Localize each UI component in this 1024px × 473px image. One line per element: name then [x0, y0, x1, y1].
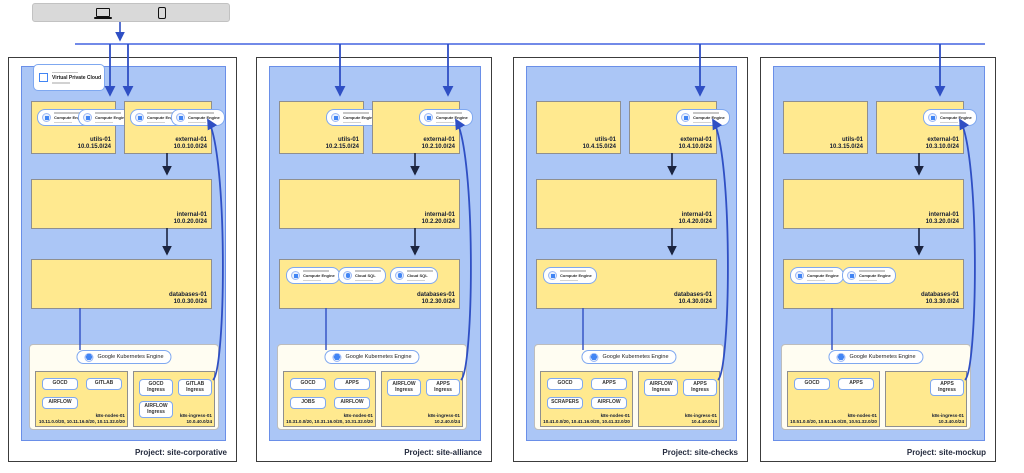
compute-engine-icon [42, 113, 51, 122]
gke-icon [836, 353, 845, 362]
subnet-label: databases-01 10.3.30.0/24 [921, 292, 959, 305]
subnet-label: internal-01 10.0.20.0/24 [174, 212, 207, 225]
workload-chip: GOCD [42, 378, 78, 390]
vpc-icon [39, 73, 48, 82]
compute-engine-icon [847, 271, 856, 280]
subnet-label: databases-01 10.0.30.0/24 [169, 292, 207, 305]
chip-microtext [52, 82, 70, 84]
workload-chip: GITLAB Ingress [178, 379, 212, 396]
workload-chip: APPS Ingress [426, 379, 460, 396]
workload-chip: GITLAB [86, 378, 122, 390]
workload-chip: AIRFLOW Ingress [139, 401, 173, 418]
subnet-label: k8s-ingress-01 10.4.40.0/24 [685, 413, 717, 424]
subnet-internal: internal-01 10.2.20.0/24 [279, 179, 460, 229]
subnet-label: k8s-nodes-01 10.41.0.0/20, 10.41.16.0/20… [543, 413, 630, 424]
compute-engine-chip: Compute Engine [676, 109, 730, 126]
subnet-external: Compute Engine external-01 10.4.10.0/24 [629, 101, 717, 154]
subnet-k8s-nodes: GOCD APPS SCRAPERS AIRFLOW k8s-nodes-01 … [540, 371, 633, 427]
workload-chip: GOCD [290, 378, 326, 390]
compute-engine-icon [176, 113, 185, 122]
gke-icon [589, 353, 598, 362]
subnet-databases: Compute Engine databases-01 10.4.30.0/24 [536, 259, 717, 309]
subnet-utils: Compute Engine utils-01 10.2.15.0/24 [279, 101, 364, 154]
project-panel-site-mockup: utils-01 10.3.15.0/24 Compute Engine ext… [760, 57, 996, 462]
subnet-label: external-01 10.0.10.0/24 [174, 137, 207, 150]
subnet-external: Compute Engine external-01 10.2.10.0/24 [372, 101, 460, 154]
vpc-chip: Virtual Private Cloud [33, 64, 105, 91]
workload-chip: AIRFLOW Ingress [387, 379, 421, 396]
cloud-sql-icon [395, 271, 404, 280]
gke-cluster: Google Kubernetes Engine GOCD GITLAB AIR… [29, 344, 219, 430]
workload-chip: JOBS [290, 397, 326, 409]
workload-chip: GOCD [794, 378, 830, 390]
gke-cluster: Google Kubernetes Engine GOCD APPS k8s-n… [781, 344, 971, 430]
laptop-icon [96, 8, 110, 17]
subnet-external: Compute Engine external-01 10.3.10.0/24 [876, 101, 964, 154]
gke-chip: Google Kubernetes Engine [581, 350, 676, 364]
compute-engine-icon [548, 271, 557, 280]
cloud-sql-chip: Cloud SQL [390, 267, 438, 284]
project-label: Project: site-alliance [404, 448, 482, 457]
subnet-label: external-01 10.3.10.0/24 [926, 137, 959, 150]
compute-engine-chip: Compute Engine [923, 109, 977, 126]
subnet-k8s-ingress: AIRFLOW Ingress APPS Ingress k8s-ingress… [638, 371, 720, 427]
gke-chip: Google Kubernetes Engine [828, 350, 923, 364]
subnet-k8s-nodes: GOCD GITLAB AIRFLOW k8s-nodes-01 10.11.0… [35, 371, 128, 427]
smartphone-icon [158, 7, 166, 19]
workload-chip: GOCD [547, 378, 583, 390]
subnet-internal: internal-01 10.4.20.0/24 [536, 179, 717, 229]
architecture-diagram: Virtual Private Cloud Compute Engine Com… [0, 0, 1024, 473]
project-panel-site-checks: utils-01 10.4.15.0/24 Compute Engine ext… [513, 57, 748, 462]
compute-engine-chip: Compute Engine [790, 267, 844, 284]
compute-engine-icon [795, 271, 804, 280]
gke-icon [332, 353, 341, 362]
project-label: Project: site-mockup [907, 448, 986, 457]
subnet-label: internal-01 10.4.20.0/24 [679, 212, 712, 225]
compute-engine-icon [424, 113, 433, 122]
subnet-databases: Compute Engine Compute Engine databases-… [783, 259, 964, 309]
subnet-label: k8s-ingress-01 10.0.40.0/24 [180, 413, 212, 424]
compute-engine-icon [681, 113, 690, 122]
subnet-label: utils-01 10.0.15.0/24 [78, 137, 111, 150]
workload-chip: AIRFLOW [42, 397, 78, 409]
compute-engine-icon [331, 113, 340, 122]
subnet-utils: Compute Engine Compute Engine utils-01 1… [31, 101, 116, 154]
subnet-internal: internal-01 10.0.20.0/24 [31, 179, 212, 229]
compute-engine-chip: Compute Engine [543, 267, 597, 284]
subnet-label: k8s-nodes-01 10.11.0.0/20, 10.11.16.0/20… [39, 413, 125, 424]
subnet-label: utils-01 10.4.15.0/24 [583, 137, 616, 150]
subnet-k8s-ingress: APPS Ingress k8s-ingress-01 10.3.40.0/24 [885, 371, 967, 427]
subnet-label: internal-01 10.3.20.0/24 [926, 212, 959, 225]
gke-cluster: Google Kubernetes Engine GOCD APPS JOBS … [277, 344, 467, 430]
gke-chip: Google Kubernetes Engine [324, 350, 419, 364]
subnet-label: k8s-nodes-01 10.31.0.0/20, 10.31.16.0/20… [286, 413, 373, 424]
compute-engine-chip: Compute Engine [286, 267, 340, 284]
subnet-external: Compute Engine Compute Engine external-0… [124, 101, 212, 154]
client-devices-bar [32, 3, 230, 22]
workload-chip: APPS [838, 378, 874, 390]
workload-chip: GOCD Ingress [139, 379, 173, 396]
subnet-label: k8s-ingress-01 10.2.40.0/24 [428, 413, 460, 424]
subnet-label: databases-01 10.2.30.0/24 [417, 292, 455, 305]
compute-engine-icon [83, 113, 92, 122]
cloud-sql-icon [343, 271, 352, 280]
compute-engine-chip: Compute Engine [842, 267, 896, 284]
workload-chip: APPS Ingress [683, 379, 717, 396]
subnet-utils: utils-01 10.3.15.0/24 [783, 101, 868, 154]
gke-cluster: Google Kubernetes Engine GOCD APPS SCRAP… [534, 344, 724, 430]
subnet-k8s-nodes: GOCD APPS k8s-nodes-01 10.51.0.0/20, 10.… [787, 371, 880, 427]
subnet-k8s-ingress: GOCD Ingress GITLAB Ingress AIRFLOW Ingr… [133, 371, 215, 427]
subnet-databases: Compute Engine Cloud SQL Cloud SQL datab… [279, 259, 460, 309]
workload-chip: APPS Ingress [930, 379, 964, 396]
subnet-label: k8s-nodes-01 10.51.0.0/20, 10.51.16.0/20… [790, 413, 877, 424]
subnet-label: utils-01 10.3.15.0/24 [830, 137, 863, 150]
compute-engine-icon [291, 271, 300, 280]
subnet-utils: utils-01 10.4.15.0/24 [536, 101, 621, 154]
subnet-internal: internal-01 10.3.20.0/24 [783, 179, 964, 229]
workload-chip: APPS [591, 378, 627, 390]
subnet-label: databases-01 10.4.30.0/24 [674, 292, 712, 305]
project-label: Project: site-checks [662, 448, 738, 457]
project-label: Project: site-corporative [135, 448, 227, 457]
cloud-sql-chip: Cloud SQL [338, 267, 386, 284]
subnet-databases: databases-01 10.0.30.0/24 [31, 259, 212, 309]
subnet-label: external-01 10.2.10.0/24 [422, 137, 455, 150]
project-panel-site-corporative: Virtual Private Cloud Compute Engine Com… [8, 57, 237, 462]
subnet-k8s-ingress: AIRFLOW Ingress APPS Ingress k8s-ingress… [381, 371, 463, 427]
project-panel-site-alliance: Compute Engine utils-01 10.2.15.0/24 Com… [256, 57, 492, 462]
workload-chip: SCRAPERS [547, 397, 583, 409]
gke-chip: Google Kubernetes Engine [76, 350, 171, 364]
chip-microtext [52, 72, 78, 74]
workload-chip: AIRFLOW [591, 397, 627, 409]
compute-engine-chip: Compute Engine [419, 109, 473, 126]
subnet-label: utils-01 10.2.15.0/24 [326, 137, 359, 150]
subnet-label: external-01 10.4.10.0/24 [679, 137, 712, 150]
compute-engine-icon [135, 113, 144, 122]
workload-chip: AIRFLOW [334, 397, 370, 409]
subnet-label: internal-01 10.2.20.0/24 [422, 212, 455, 225]
subnet-k8s-nodes: GOCD APPS JOBS AIRFLOW k8s-nodes-01 10.3… [283, 371, 376, 427]
subnet-label: k8s-ingress-01 10.3.40.0/24 [932, 413, 964, 424]
gke-icon [84, 353, 93, 362]
workload-chip: APPS [334, 378, 370, 390]
workload-chip: AIRFLOW Ingress [644, 379, 678, 396]
compute-engine-chip: Compute Engine [171, 109, 225, 126]
vpc-label: Virtual Private Cloud [52, 75, 101, 81]
compute-engine-icon [928, 113, 937, 122]
